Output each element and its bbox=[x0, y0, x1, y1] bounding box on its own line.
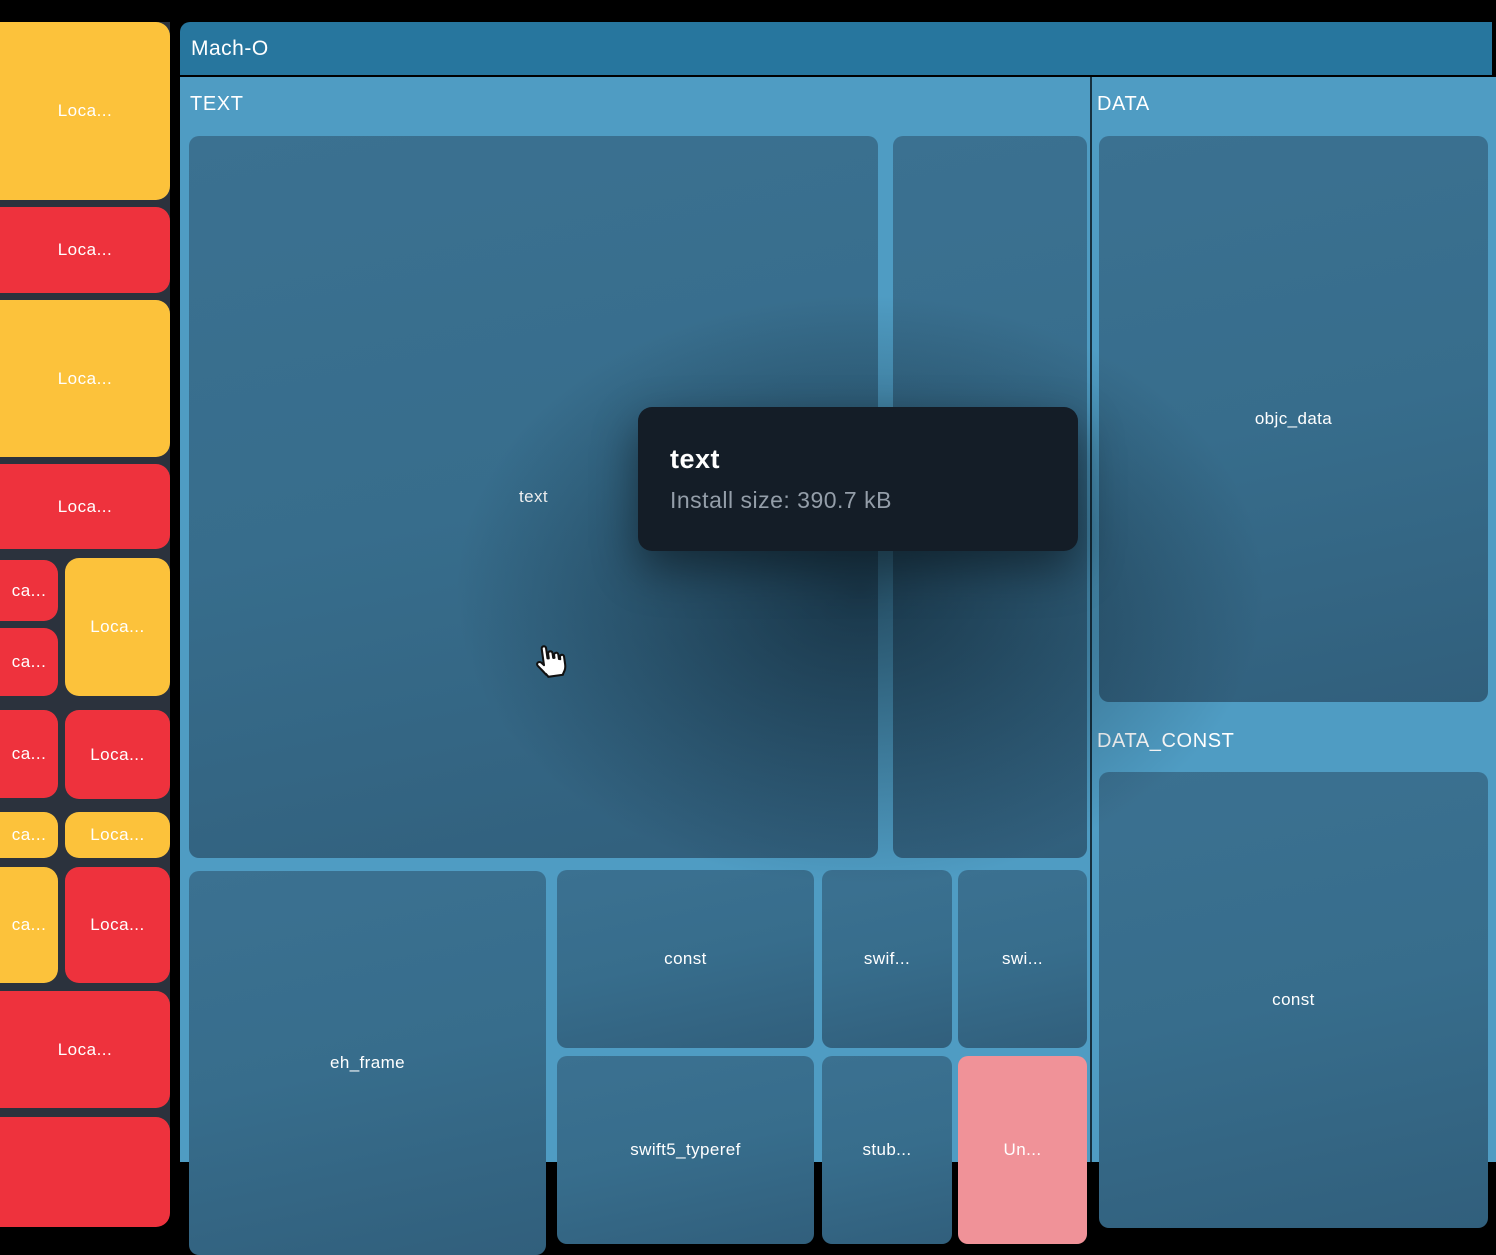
sidebar-item-label: Loca... bbox=[58, 240, 113, 260]
sidebar-item-label: Loca... bbox=[90, 617, 145, 637]
treemap-root-title: Mach-O bbox=[191, 37, 269, 61]
sidebar-item-label: ca... bbox=[12, 744, 47, 764]
treemap-node-label: eh_frame bbox=[330, 1053, 405, 1073]
sidebar-item[interactable]: ca... bbox=[0, 867, 58, 983]
treemap-node-swift5-typeref[interactable]: swift5_typeref bbox=[557, 1056, 814, 1244]
sidebar-item[interactable]: Loca... bbox=[0, 300, 170, 457]
treemap-node-un[interactable]: Un... bbox=[958, 1056, 1087, 1244]
sidebar-item-label: ca... bbox=[12, 825, 47, 845]
treemap-node-const[interactable]: const bbox=[557, 870, 814, 1048]
sidebar-item-label: Loca... bbox=[90, 915, 145, 935]
section-divider bbox=[1090, 77, 1092, 1162]
sidebar-item[interactable]: Loca... bbox=[65, 867, 170, 983]
treemap-node-label: const bbox=[664, 949, 707, 969]
sidebar-item[interactable]: ca... bbox=[0, 560, 58, 621]
sidebar-item[interactable] bbox=[0, 1117, 170, 1227]
treemap-node-const[interactable]: const bbox=[1099, 772, 1488, 1228]
tooltip: text Install size: 390.7 kB bbox=[638, 407, 1078, 551]
sidebar-item-label: ca... bbox=[12, 915, 47, 935]
sidebar-item-label: Loca... bbox=[90, 825, 145, 845]
sidebar-item-label: ca... bbox=[12, 652, 47, 672]
section-label-text: TEXT bbox=[190, 93, 244, 116]
section-label-data: DATA bbox=[1097, 93, 1150, 116]
tooltip-detail: Install size: 390.7 kB bbox=[670, 487, 1078, 514]
sidebar-item[interactable]: ca... bbox=[0, 812, 58, 858]
treemap-node-label: swi... bbox=[1002, 949, 1043, 969]
pointer-hand-cursor bbox=[528, 637, 571, 682]
treemap-node-swi[interactable]: swi... bbox=[958, 870, 1087, 1048]
sidebar-item-label: Loca... bbox=[90, 745, 145, 765]
sidebar-item-label: Loca... bbox=[58, 101, 113, 121]
treemap-node-eh-frame[interactable]: eh_frame bbox=[189, 871, 546, 1255]
sidebar-item[interactable]: ca... bbox=[0, 710, 58, 798]
sidebar-item[interactable]: Loca... bbox=[65, 558, 170, 696]
sidebar-item[interactable]: Loca... bbox=[0, 207, 170, 293]
sidebar-item-label: Loca... bbox=[58, 369, 113, 389]
treemap-node-objc-data[interactable]: objc_data bbox=[1099, 136, 1488, 702]
sidebar-item-label: Loca... bbox=[58, 497, 113, 517]
treemap-root-header[interactable]: Mach-O bbox=[180, 22, 1492, 75]
section-label-data-const: DATA_CONST bbox=[1097, 730, 1235, 753]
treemap-node-stub[interactable]: stub... bbox=[822, 1056, 952, 1244]
treemap-node-label: swift5_typeref bbox=[630, 1140, 740, 1160]
sidebar-item[interactable]: Loca... bbox=[0, 464, 170, 549]
treemap-node-label: swif... bbox=[864, 949, 910, 969]
sidebar-item[interactable]: Loca... bbox=[65, 710, 170, 799]
treemap-node-label: const bbox=[1272, 990, 1315, 1010]
sidebar-item[interactable]: ca... bbox=[0, 628, 58, 696]
treemap-node-label: stub... bbox=[862, 1140, 911, 1160]
sidebar-item-label: ca... bbox=[12, 581, 47, 601]
tooltip-title: text bbox=[670, 444, 1078, 475]
treemap-node-label: text bbox=[519, 487, 548, 507]
sidebar-item[interactable]: Loca... bbox=[0, 22, 170, 200]
treemap-node-label: objc_data bbox=[1255, 409, 1332, 429]
treemap-node-label: Un... bbox=[1004, 1140, 1042, 1160]
sidebar-item-label: Loca... bbox=[58, 1040, 113, 1060]
treemap-node-swif[interactable]: swif... bbox=[822, 870, 952, 1048]
app-root: Loca...Loca...Loca...Loca...ca...Loca...… bbox=[0, 0, 1496, 1162]
sidebar-item[interactable]: Loca... bbox=[0, 991, 170, 1108]
sidebar-item[interactable]: Loca... bbox=[65, 812, 170, 858]
